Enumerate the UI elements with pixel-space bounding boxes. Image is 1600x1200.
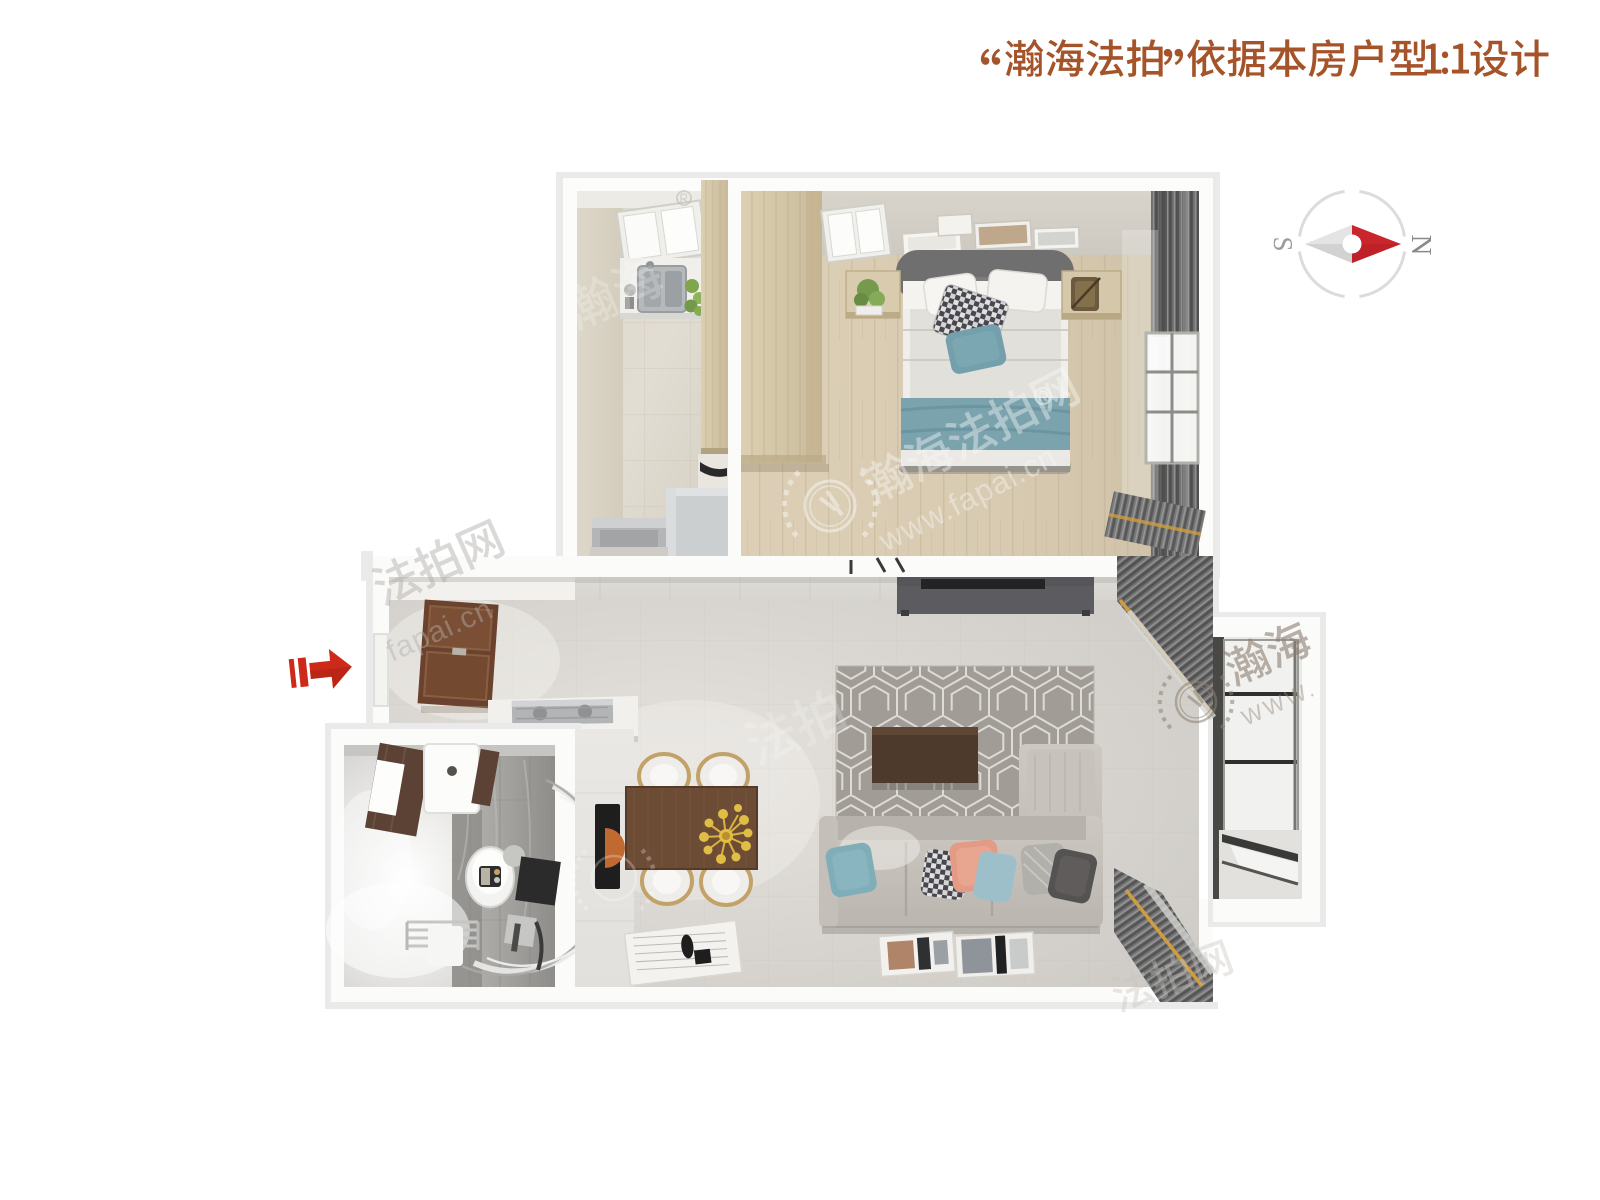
svg-text:N: N — [1405, 235, 1437, 256]
svg-text:S: S — [1268, 236, 1298, 251]
